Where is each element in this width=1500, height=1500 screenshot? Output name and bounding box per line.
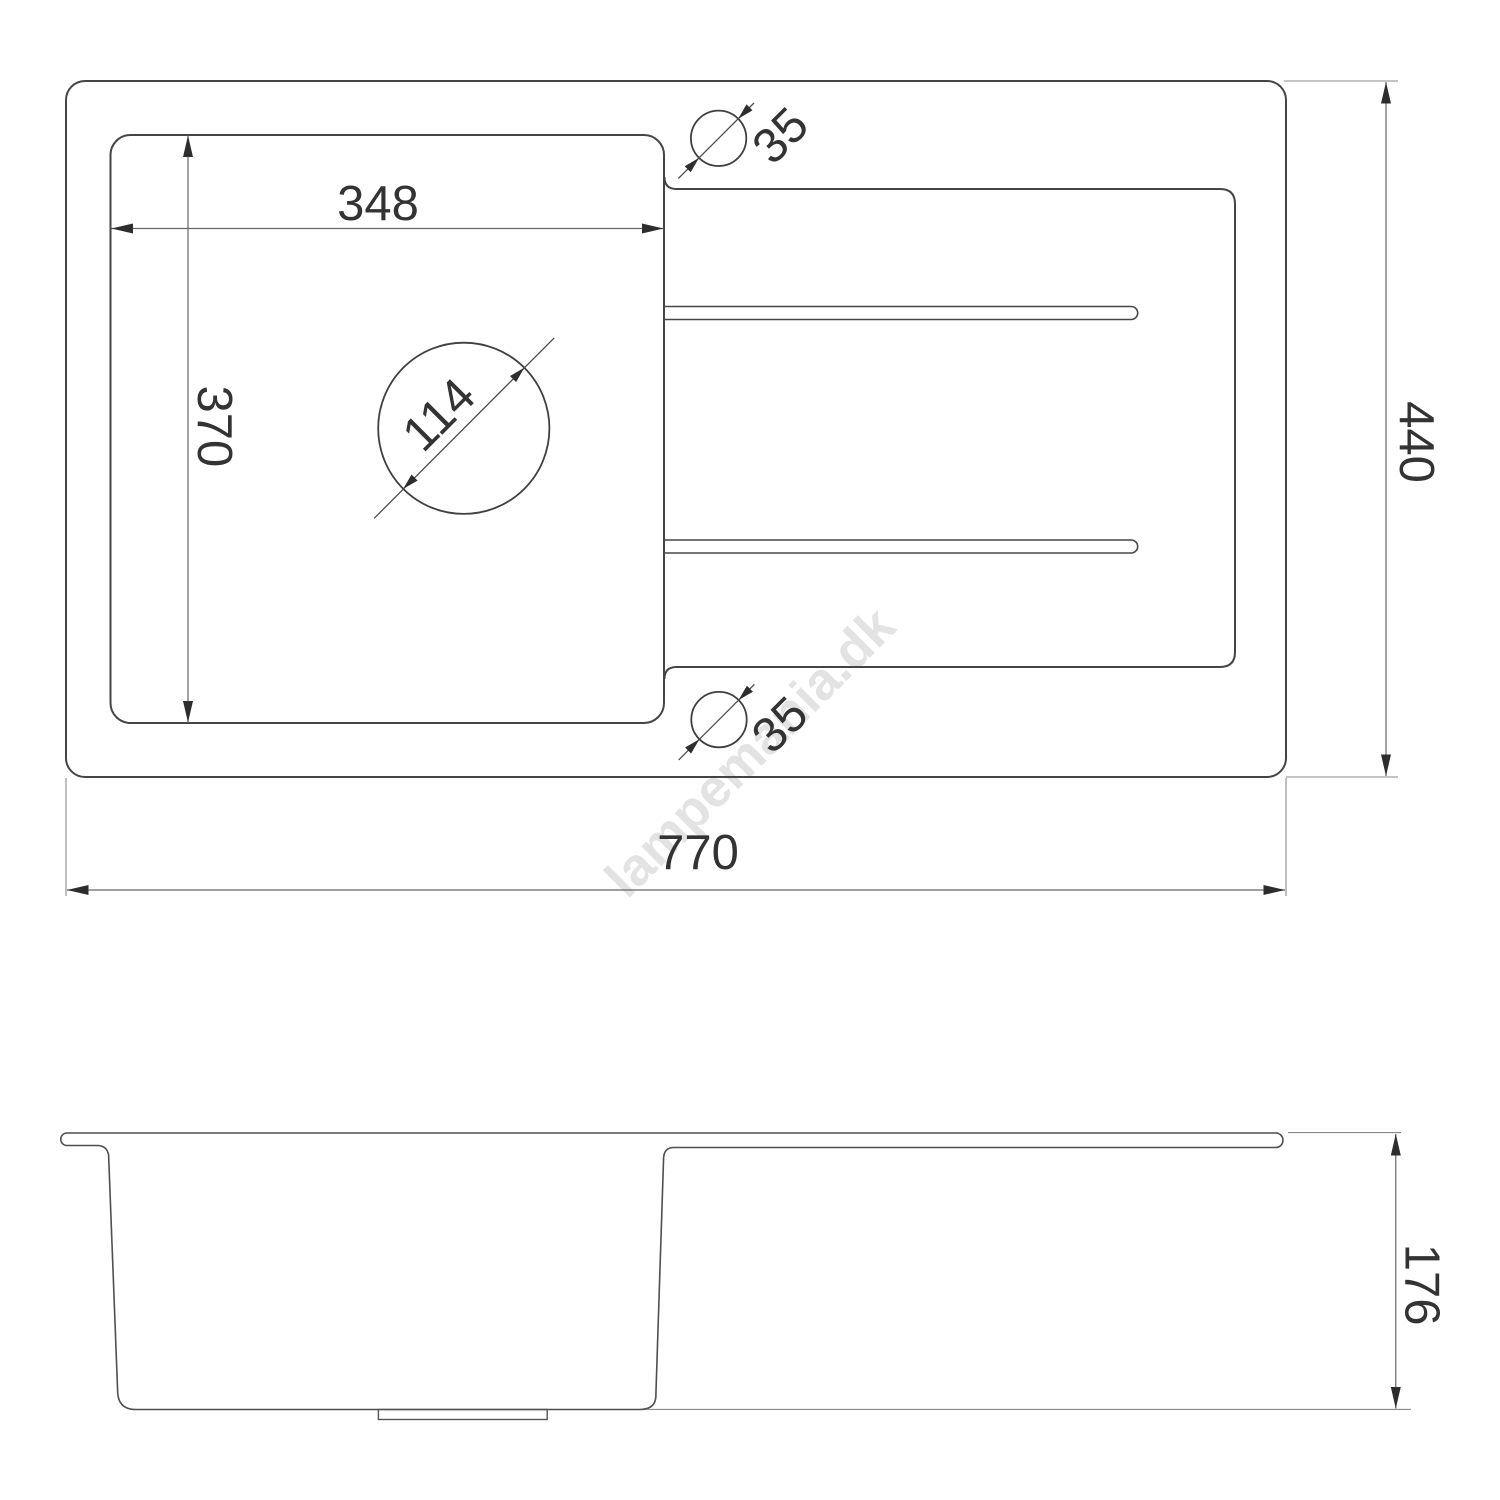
svg-text:440: 440 <box>1389 401 1443 483</box>
svg-text:348: 348 <box>337 177 419 231</box>
svg-text:176: 176 <box>1395 1244 1449 1326</box>
svg-text:370: 370 <box>187 386 241 468</box>
svg-text:770: 770 <box>657 826 739 880</box>
